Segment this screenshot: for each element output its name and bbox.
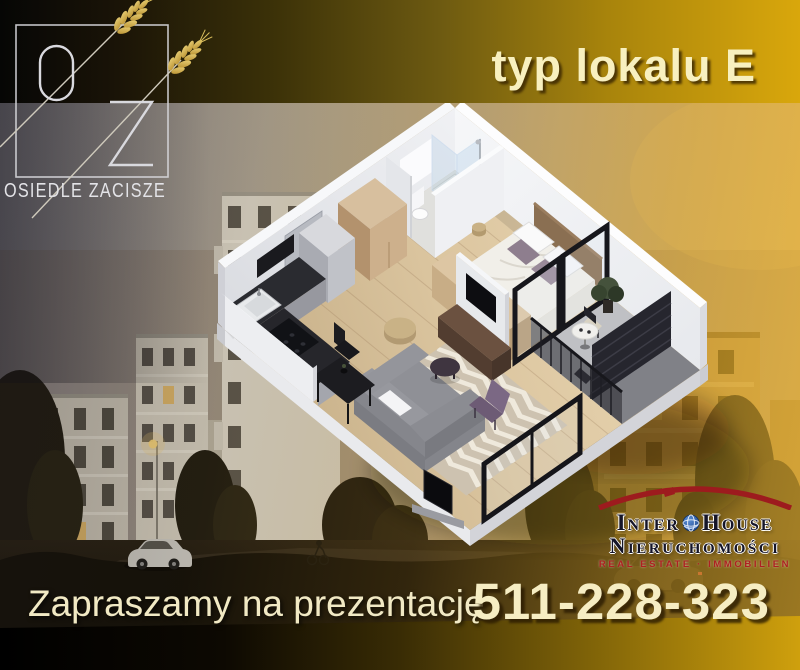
coffee-table xyxy=(430,358,460,385)
interhouse-tagline: Real Estate · Immobilien xyxy=(593,559,797,570)
monogram-o-icon xyxy=(40,46,73,100)
real-estate-ad: typ lokalu E xyxy=(0,0,800,670)
wheat-stem xyxy=(0,22,125,147)
interhouse-name-inter: Inter xyxy=(617,511,680,534)
osiedle-zacisze-logo: OSIEDLE ZACISZE xyxy=(0,0,230,235)
invitation-text: Zapraszamy na prezentację xyxy=(28,583,485,625)
estate-name: OSIEDLE ZACISZE xyxy=(4,180,166,202)
red-roof-arc-icon xyxy=(593,482,797,510)
monogram-z-icon xyxy=(110,102,153,165)
bedside-stool xyxy=(472,223,486,232)
interhouse-name-house: House xyxy=(702,511,773,534)
globe-icon xyxy=(682,514,700,532)
unit-type-headline: typ lokalu E xyxy=(491,40,756,92)
interhouse-name: Inter House xyxy=(593,511,797,534)
phone-number: 511-228-323 xyxy=(473,572,770,631)
wheat-stalks-icon xyxy=(108,0,163,40)
interhouse-subtitle: Nieruchomości xyxy=(593,534,797,557)
pouf xyxy=(384,318,416,345)
interhouse-logo: Inter House Nieruchomości Real Estate · … xyxy=(593,482,797,570)
balcony-plant xyxy=(608,286,624,302)
balcony-table xyxy=(572,323,598,339)
